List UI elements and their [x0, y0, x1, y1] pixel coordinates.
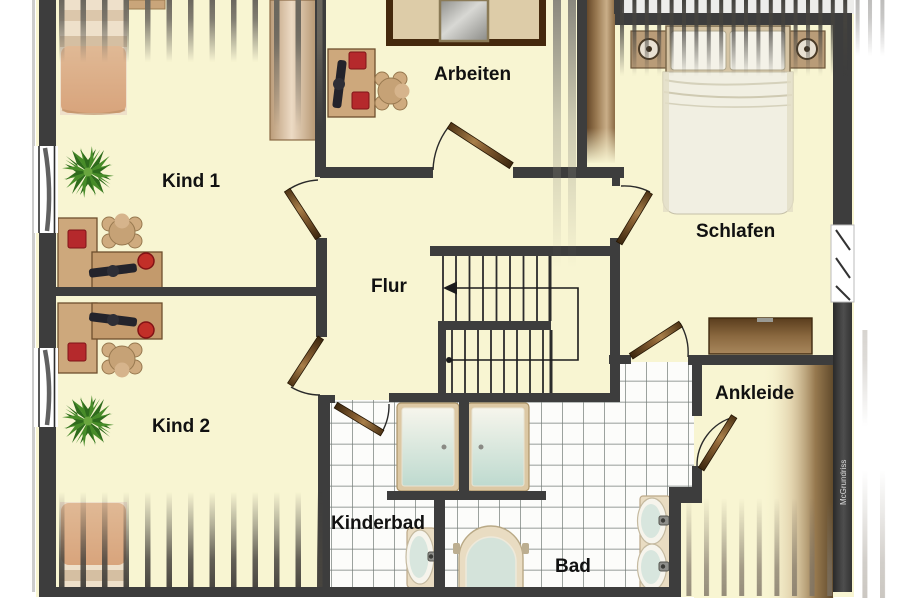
svg-text:Bad: Bad [555, 556, 591, 577]
svg-text:Ankleide: Ankleide [715, 383, 794, 404]
svg-text:Arbeiten: Arbeiten [434, 64, 511, 85]
svg-text:McGrundriss: McGrundriss [839, 460, 848, 505]
svg-text:Flur: Flur [371, 276, 407, 297]
svg-text:Kinderbad: Kinderbad [331, 513, 425, 534]
svg-text:Kind 1: Kind 1 [162, 171, 220, 192]
svg-text:Kind 2: Kind 2 [152, 416, 210, 437]
svg-text:Schlafen: Schlafen [696, 221, 775, 242]
